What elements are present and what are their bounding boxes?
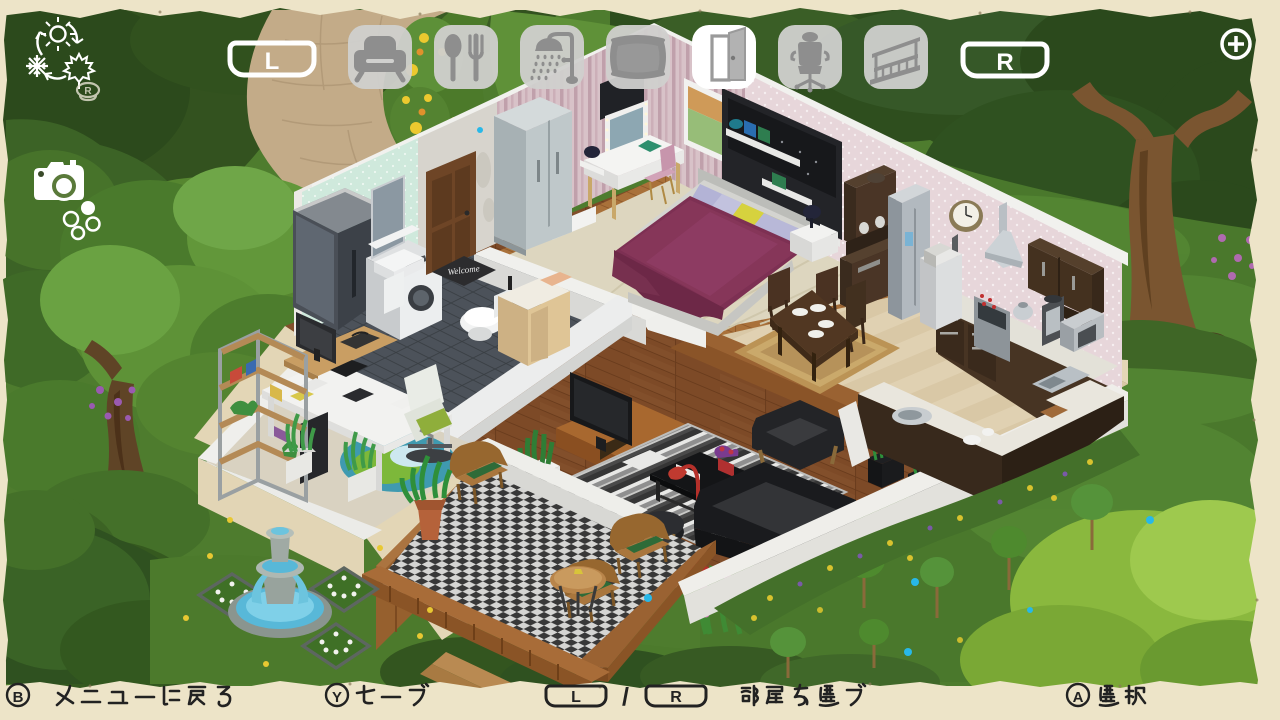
svg-text:L: L (571, 689, 581, 706)
svg-text:/: / (622, 683, 629, 711)
svg-text:R: R (996, 49, 1013, 76)
svg-text:A: A (1073, 689, 1084, 706)
svg-text:B: B (13, 689, 24, 706)
svg-text:R: R (670, 689, 682, 706)
svg-text:Y: Y (332, 689, 342, 706)
svg-text:L: L (265, 48, 280, 75)
svg-text:R: R (84, 86, 92, 97)
